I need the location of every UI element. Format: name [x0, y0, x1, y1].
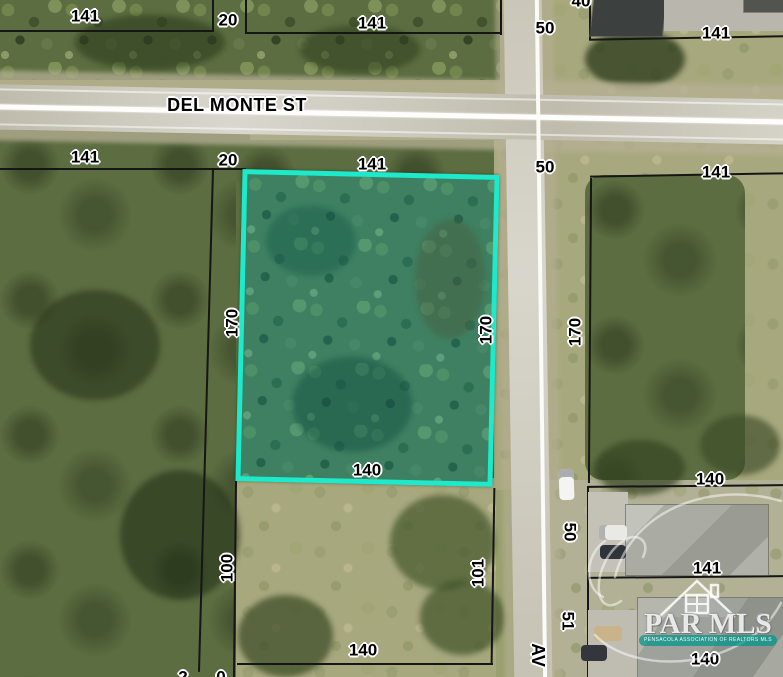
- dimension-label-50: 50: [536, 159, 555, 176]
- street-label-del-monte: DEL MONTE ST: [167, 96, 307, 114]
- dimension-label-2: 2: [178, 669, 187, 677]
- dimension-label-170: 170: [567, 318, 584, 346]
- dimension-label-0: 0: [216, 669, 225, 677]
- dimension-label-141: 141: [358, 156, 386, 173]
- dimension-label-51: 51: [560, 612, 577, 631]
- dimension-label-141: 141: [702, 25, 730, 42]
- dimension-label-140: 140: [349, 642, 377, 659]
- parcel-map-image: 1412014140501411412014150141170170170140…: [0, 0, 783, 677]
- dimension-label-141: 141: [693, 560, 721, 577]
- dimension-label-100: 100: [219, 554, 236, 582]
- dimension-label-101: 101: [470, 559, 487, 587]
- dimension-label-140: 140: [353, 462, 381, 479]
- dimension-label-50: 50: [536, 20, 555, 37]
- dimension-label-140: 140: [691, 651, 719, 668]
- dimension-label-170: 170: [478, 316, 495, 344]
- dimension-label-141: 141: [358, 15, 386, 32]
- dimension-label-140: 140: [696, 471, 724, 488]
- street-label-avenue: AV: [529, 643, 547, 667]
- dimension-label-141: 141: [702, 164, 730, 181]
- dimension-label-50: 50: [562, 523, 579, 542]
- dimension-label-141: 141: [71, 8, 99, 25]
- dimension-label-141: 141: [71, 149, 99, 166]
- dimension-labels-layer: 1412014140501411412014150141170170170140…: [0, 0, 783, 677]
- dimension-label-170: 170: [224, 309, 241, 337]
- dimension-label-40: 40: [572, 0, 591, 10]
- dimension-label-20: 20: [219, 152, 238, 169]
- dimension-label-20: 20: [219, 12, 238, 29]
